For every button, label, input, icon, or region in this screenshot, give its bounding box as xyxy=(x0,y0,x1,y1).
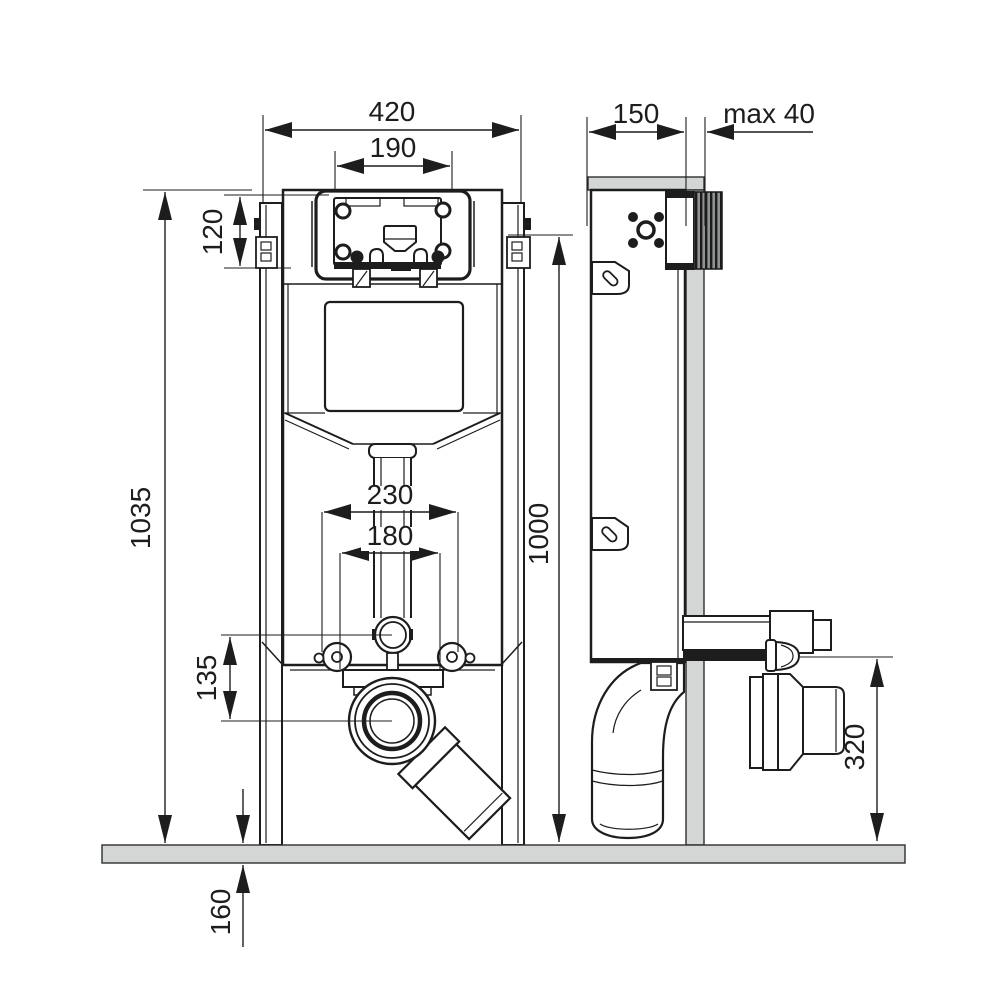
screw-hole xyxy=(336,204,350,218)
push-rod xyxy=(432,251,445,264)
wc-outlet-connector xyxy=(750,674,844,770)
flush-plate-cover-hatch xyxy=(694,192,722,269)
box-leg xyxy=(420,269,437,287)
box-leg xyxy=(353,269,370,287)
flush-pipe-section xyxy=(683,649,768,661)
dim-label-max-wall-cover: max 40 xyxy=(723,98,815,129)
right-rail xyxy=(502,203,524,845)
finished-wall xyxy=(686,190,704,845)
dim-label-bracket-span: 180 xyxy=(367,520,414,551)
front-view xyxy=(228,190,531,845)
rail-clip-left xyxy=(256,237,277,268)
wall-bracket-lower xyxy=(592,518,628,550)
dim-label-outlet-offset: 135 xyxy=(191,655,222,702)
dim-label-frame-width: 420 xyxy=(369,96,416,127)
dim-label-outlet-height: 320 xyxy=(839,724,870,771)
side-view xyxy=(588,177,844,845)
screw-hole xyxy=(336,245,350,259)
left-rail xyxy=(260,203,282,845)
rail-clip-right xyxy=(507,237,530,268)
dim-label-frame-depth: 150 xyxy=(613,98,660,129)
dim-label-total-height: 1035 xyxy=(125,487,156,549)
flush-valve-collar xyxy=(369,444,416,458)
screw-hole xyxy=(436,203,450,217)
dim-label-anchor-span: 230 xyxy=(367,479,414,510)
push-rod xyxy=(351,251,364,264)
floor-slab xyxy=(102,845,905,863)
cistern-tank xyxy=(325,302,463,411)
wall-bracket-upper xyxy=(592,262,629,294)
flush-pipe-side xyxy=(683,616,771,650)
flush-plate-frame xyxy=(312,191,474,287)
dim-label-flush-plate-width: 190 xyxy=(370,132,417,163)
flush-plate-shaft xyxy=(666,192,694,269)
dim-label-head-unit-height: 120 xyxy=(197,209,228,256)
dim-label-install-height: 1000 xyxy=(523,503,554,565)
cistern-installation-diagram: 420 190 150 max 40 230 180 1035 120 1000… xyxy=(0,0,1000,1000)
wall-top-band xyxy=(588,177,704,190)
flush-pipe-connector xyxy=(766,611,831,671)
technical-drawing-page: 420 190 150 max 40 230 180 1035 120 1000… xyxy=(0,0,1000,1000)
outlet-elbow-side xyxy=(592,662,684,838)
dim-label-floor-buildup: 160 xyxy=(205,889,236,936)
